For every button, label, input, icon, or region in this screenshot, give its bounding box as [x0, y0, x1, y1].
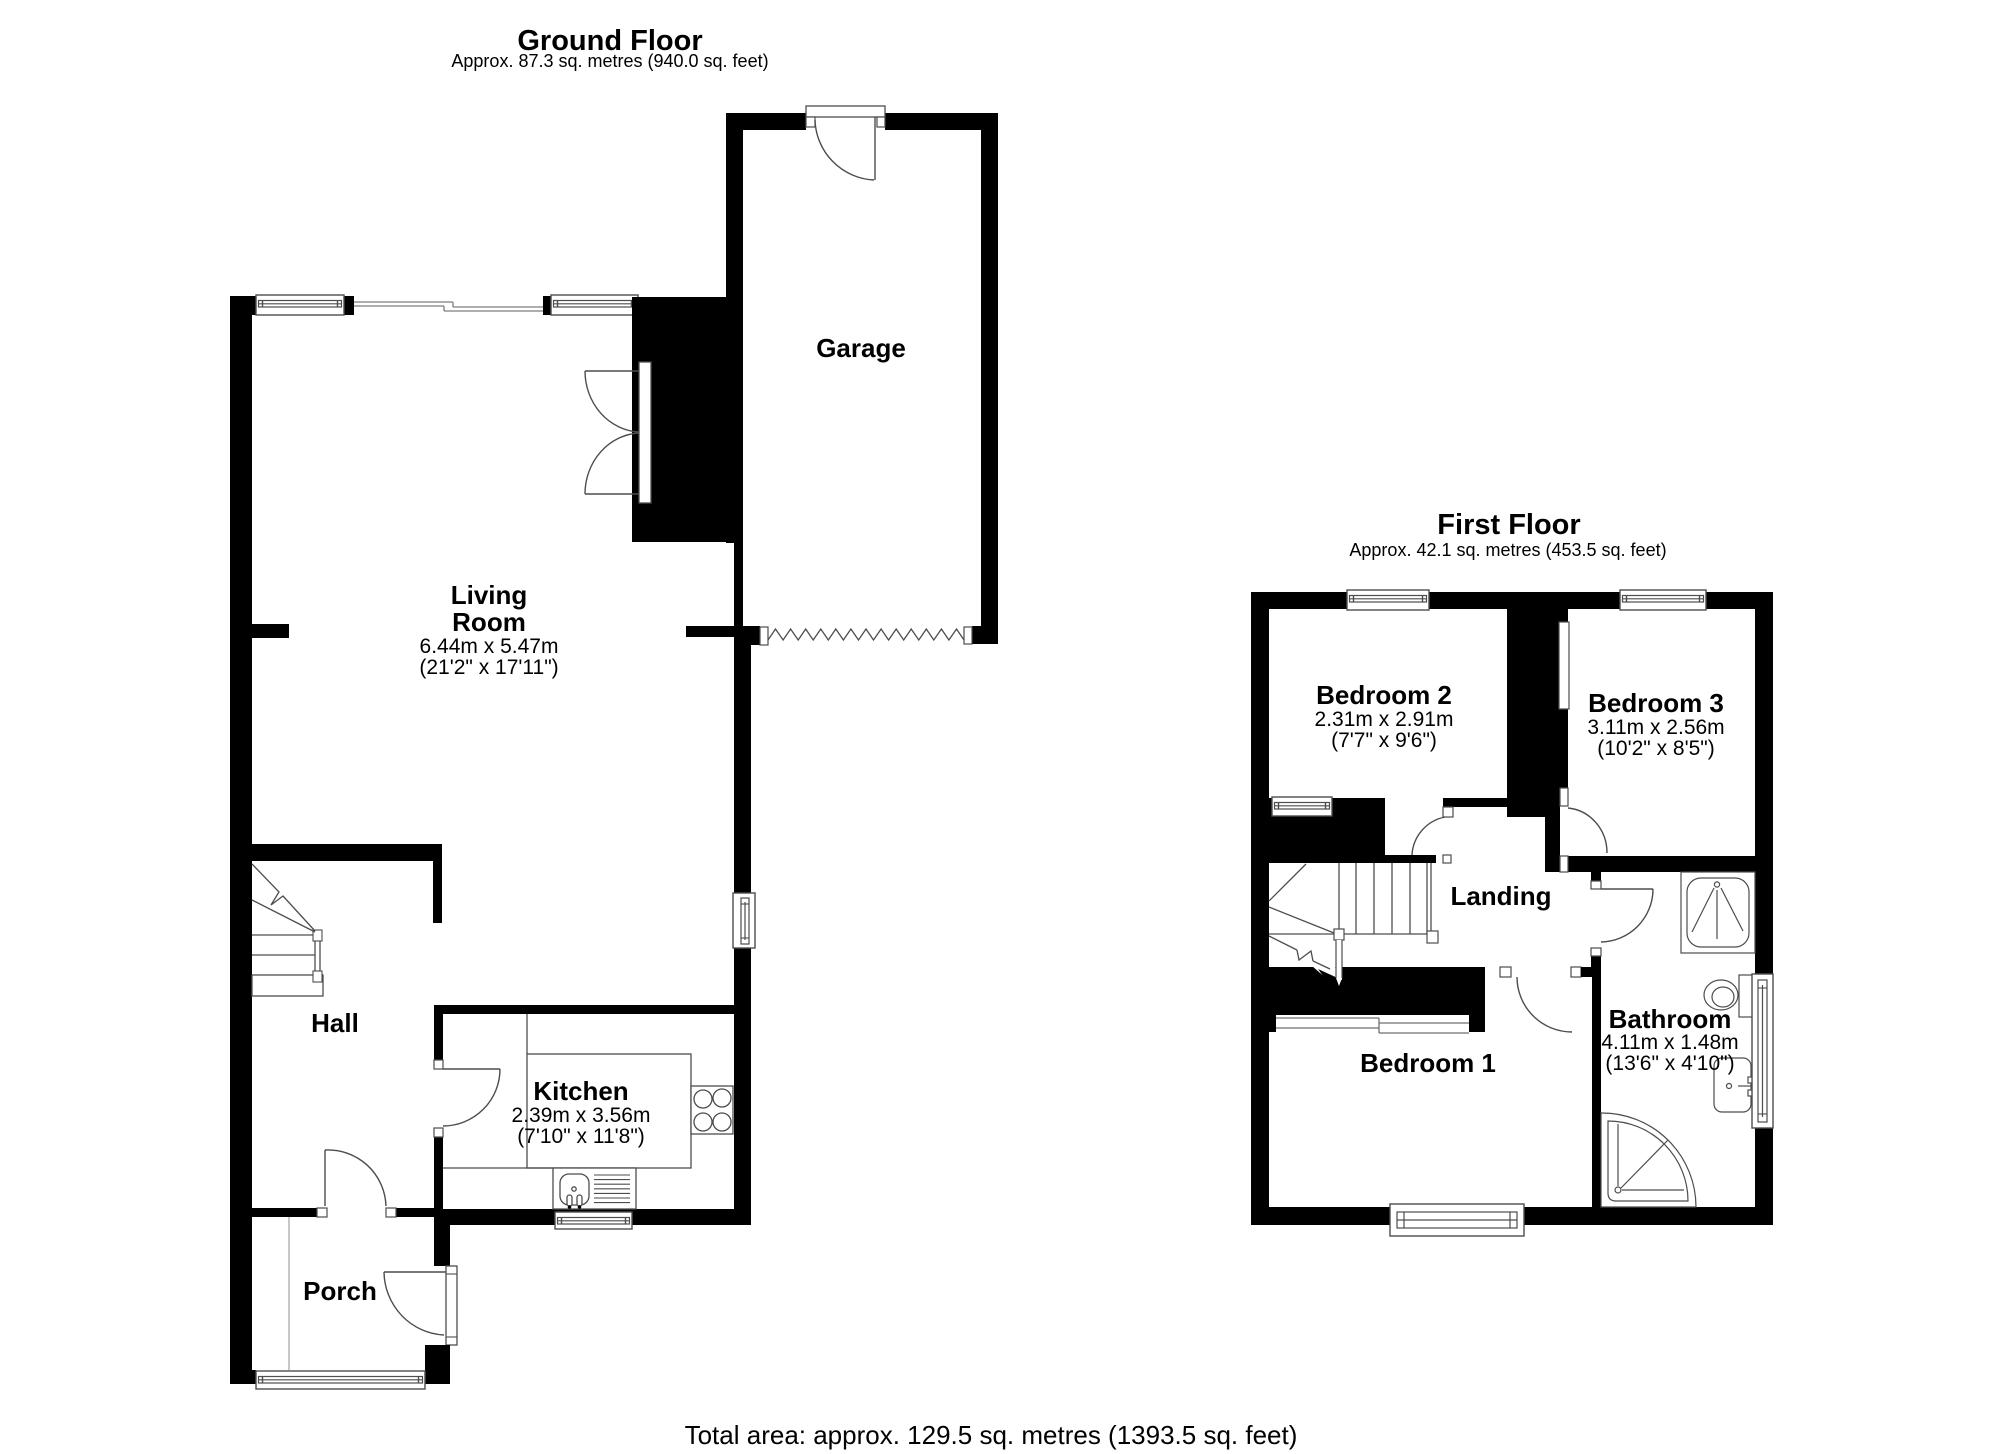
svg-text:Kitchen: Kitchen: [533, 1076, 628, 1106]
svg-text:Hall: Hall: [311, 1008, 359, 1038]
svg-text:Garage: Garage: [816, 333, 906, 363]
svg-text:(7'7" x 9'6"): (7'7" x 9'6"): [1331, 729, 1437, 752]
svg-text:(21'2" x 17'11"): (21'2" x 17'11"): [419, 656, 558, 679]
svg-text:Bedroom 2: Bedroom 2: [1316, 680, 1452, 710]
svg-text:Approx. 87.3 sq. metres (940.0: Approx. 87.3 sq. metres (940.0 sq. feet): [451, 51, 768, 71]
svg-text:2.31m x 2.91m: 2.31m x 2.91m: [1315, 708, 1454, 731]
svg-text:Bedroom 1: Bedroom 1: [1360, 1048, 1496, 1078]
svg-text:Living: Living: [451, 580, 528, 610]
svg-text:Porch: Porch: [303, 1276, 377, 1306]
svg-text:6.44m x 5.47m: 6.44m x 5.47m: [420, 635, 559, 658]
svg-text:Bedroom 3: Bedroom 3: [1588, 688, 1724, 718]
svg-text:2.39m x 3.56m: 2.39m x 3.56m: [512, 1104, 651, 1127]
svg-text:4.11m x 1.48m: 4.11m x 1.48m: [1601, 1031, 1738, 1054]
svg-text:First Floor: First Floor: [1437, 509, 1580, 541]
svg-text:Approx. 42.1 sq. metres (453.5: Approx. 42.1 sq. metres (453.5 sq. feet): [1349, 540, 1666, 560]
svg-text:Bathroom: Bathroom: [1609, 1004, 1732, 1034]
svg-text:3.11m x 2.56m: 3.11m x 2.56m: [1587, 716, 1724, 739]
svg-text:(7'10" x 11'8"): (7'10" x 11'8"): [517, 1125, 645, 1148]
svg-text:(13'6" x 4'10"): (13'6" x 4'10"): [1605, 1052, 1734, 1075]
svg-text:Landing: Landing: [1450, 881, 1551, 911]
svg-text:Total area: approx. 129.5 sq.: Total area: approx. 129.5 sq. metres (13…: [685, 1420, 1298, 1450]
svg-text:Room: Room: [452, 607, 526, 637]
svg-text:(10'2" x 8'5"): (10'2" x 8'5"): [1597, 737, 1714, 760]
